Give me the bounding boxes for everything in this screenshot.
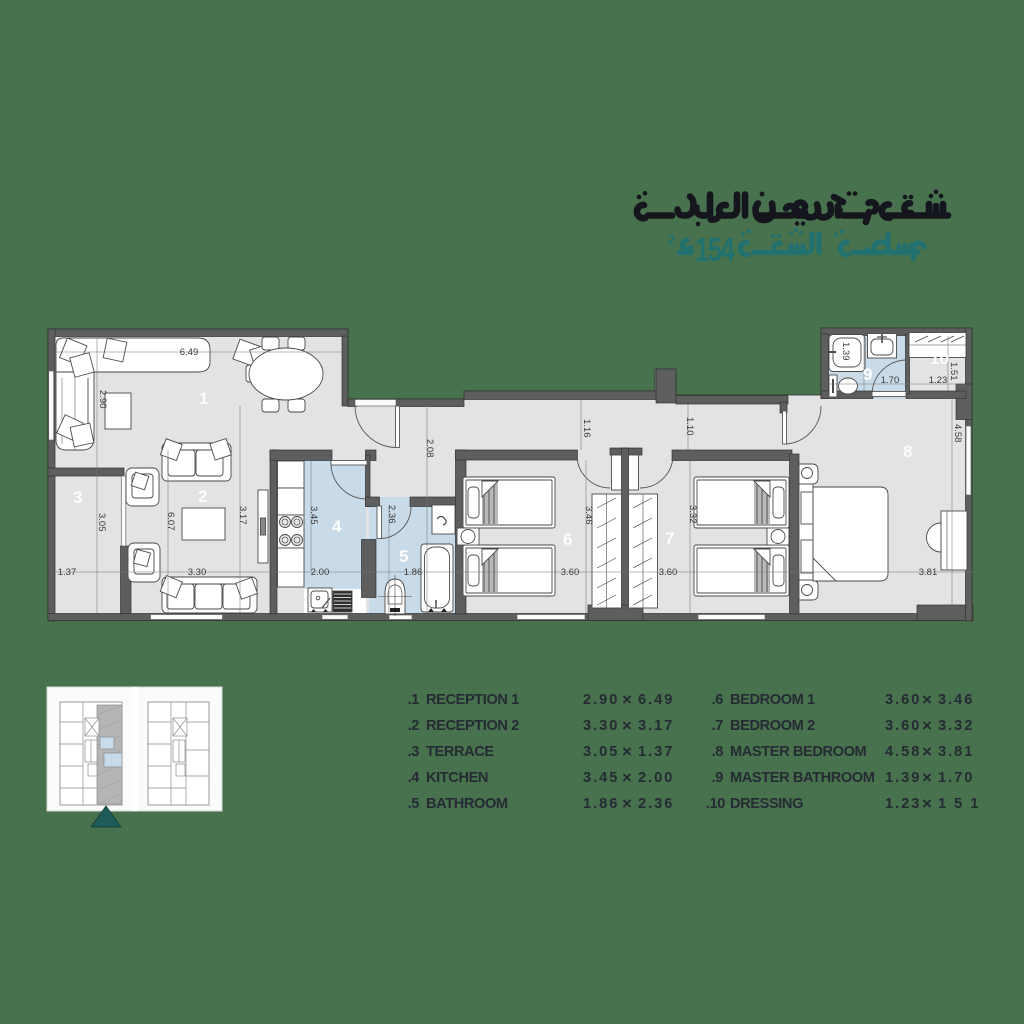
svg-text:2.36: 2.36 — [638, 796, 674, 812]
svg-text:3.60: 3.60 — [561, 567, 580, 578]
svg-text:BATHROOM: BATHROOM — [426, 796, 508, 812]
svg-text:3.60: 3.60 — [885, 718, 921, 734]
svg-text:3.30: 3.30 — [583, 718, 619, 734]
svg-text:×: × — [622, 690, 632, 709]
svg-text:.8: .8 — [712, 744, 724, 760]
svg-text:2.08: 2.08 — [424, 439, 435, 458]
svg-text:3.32: 3.32 — [687, 505, 698, 524]
svg-text:BEDROOM 2: BEDROOM 2 — [730, 718, 815, 734]
svg-text:2.36: 2.36 — [386, 505, 397, 524]
svg-text:.1: .1 — [408, 692, 420, 708]
svg-text:1.37: 1.37 — [58, 567, 77, 578]
svg-text:8: 8 — [903, 442, 912, 461]
svg-text:×: × — [922, 794, 932, 813]
svg-text:KITCHEN: KITCHEN — [426, 770, 488, 786]
svg-text:×: × — [622, 768, 632, 787]
svg-text:.10: .10 — [706, 796, 725, 812]
svg-text:3.60: 3.60 — [885, 692, 921, 708]
svg-text:6.49: 6.49 — [180, 347, 199, 358]
svg-text:4.58: 4.58 — [952, 424, 963, 443]
svg-text:TERRACE: TERRACE — [426, 744, 494, 760]
svg-text:.2: .2 — [408, 718, 420, 734]
svg-text:MASTER BEDROOM: MASTER BEDROOM — [730, 744, 867, 760]
svg-text:3.45: 3.45 — [583, 770, 619, 786]
svg-text:MASTER BATHROOM: MASTER BATHROOM — [730, 770, 875, 786]
svg-text:1.16: 1.16 — [581, 419, 592, 438]
svg-text:6.07: 6.07 — [165, 512, 176, 531]
svg-text:3.05: 3.05 — [583, 744, 619, 760]
svg-text:2: 2 — [198, 487, 207, 506]
svg-text:1: 1 — [199, 389, 208, 408]
svg-text:3.46: 3.46 — [583, 506, 594, 525]
svg-text:×: × — [622, 742, 632, 761]
svg-text:2.90: 2.90 — [583, 692, 619, 708]
svg-text:3.81: 3.81 — [919, 567, 938, 578]
svg-text:.5: .5 — [408, 796, 420, 812]
svg-text:.6: .6 — [712, 692, 724, 708]
svg-text:1 5 1: 1 5 1 — [938, 796, 980, 812]
svg-text:3.30: 3.30 — [188, 567, 207, 578]
svg-text:2.00: 2.00 — [638, 770, 674, 786]
svg-text:1.86: 1.86 — [583, 796, 619, 812]
svg-text:3.45: 3.45 — [308, 506, 319, 525]
svg-text:1.37: 1.37 — [638, 744, 674, 760]
svg-text:6: 6 — [563, 530, 572, 549]
svg-text:×: × — [622, 794, 632, 813]
svg-text:.7: .7 — [712, 718, 724, 734]
svg-text:9: 9 — [863, 365, 872, 384]
svg-text:1.39: 1.39 — [840, 342, 851, 361]
svg-text:×: × — [922, 768, 932, 787]
svg-text:2.00: 2.00 — [311, 567, 330, 578]
svg-text:1.23: 1.23 — [885, 796, 921, 812]
svg-text:3.32: 3.32 — [938, 718, 974, 734]
svg-text:7: 7 — [665, 529, 674, 548]
svg-text:2: 2 — [668, 232, 675, 247]
svg-text:1.86: 1.86 — [404, 567, 423, 578]
svg-text:3.46: 3.46 — [938, 692, 974, 708]
svg-text:1.10: 1.10 — [684, 417, 695, 436]
svg-text:6.49: 6.49 — [638, 692, 674, 708]
svg-text:5: 5 — [399, 547, 408, 566]
svg-text:3.05: 3.05 — [96, 513, 107, 532]
svg-text:RECEPTION 2: RECEPTION 2 — [426, 718, 519, 734]
svg-text:4.58: 4.58 — [885, 744, 921, 760]
svg-text:10: 10 — [930, 349, 949, 368]
svg-text:1.70: 1.70 — [881, 375, 900, 386]
svg-text:1.23: 1.23 — [929, 375, 948, 386]
svg-text:3.60: 3.60 — [659, 567, 678, 578]
svg-text:×: × — [922, 742, 932, 761]
svg-text:3.17: 3.17 — [237, 506, 248, 525]
svg-text:3.81: 3.81 — [938, 744, 974, 760]
svg-text:DRESSING: DRESSING — [730, 796, 803, 812]
svg-text:×: × — [922, 716, 932, 735]
svg-text:154: 154 — [695, 232, 735, 269]
svg-text:.3: .3 — [408, 744, 420, 760]
svg-text:×: × — [922, 690, 932, 709]
svg-text:.9: .9 — [712, 770, 724, 786]
svg-text:×: × — [622, 716, 632, 735]
svg-text:1.39: 1.39 — [885, 770, 921, 786]
svg-text:3.17: 3.17 — [638, 718, 674, 734]
svg-text:1.51: 1.51 — [948, 362, 959, 381]
svg-text:1.70: 1.70 — [938, 770, 974, 786]
svg-text:3: 3 — [73, 488, 82, 507]
svg-text:4: 4 — [332, 517, 342, 536]
svg-text:RECEPTION 1: RECEPTION 1 — [426, 692, 519, 708]
svg-text:2.90: 2.90 — [97, 390, 108, 409]
svg-text:.4: .4 — [408, 770, 421, 786]
svg-text:BEDROOM 1: BEDROOM 1 — [730, 692, 815, 708]
